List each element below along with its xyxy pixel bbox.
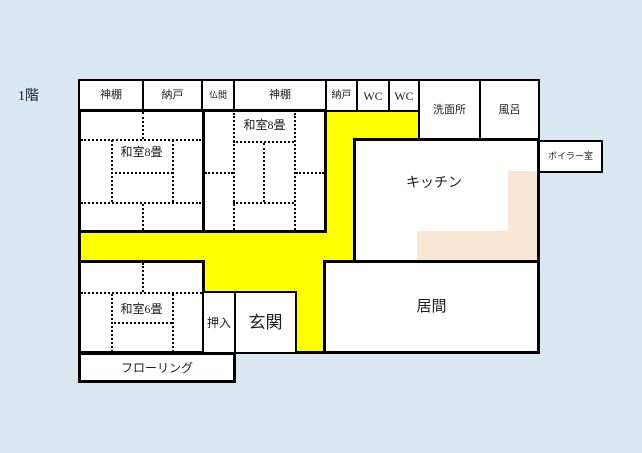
tatami-divider	[111, 140, 113, 202]
room-label-washitsu8-center: 和室8畳	[243, 119, 285, 131]
corridor-segment-main-hall	[80, 233, 356, 262]
room-label-boiler: ボイラー室	[548, 152, 593, 161]
corridor-segment-entry-side	[296, 262, 325, 352]
tatami-divider	[81, 139, 201, 141]
tatami-divider	[205, 172, 233, 174]
room-boiler: ボイラー室	[538, 140, 603, 173]
tatami-divider	[263, 143, 265, 202]
room-label-ima: 居間	[416, 300, 446, 315]
room-nando-1: 納戸	[142, 79, 203, 112]
room-label-kitchen: キッチン	[406, 177, 462, 191]
tatami-divider	[296, 172, 324, 174]
room-flooring: フローリング	[78, 352, 236, 383]
tatami-divider	[111, 322, 172, 324]
room-butsuma: 仏間	[201, 79, 235, 112]
room-label-senmenjo: 洗面所	[433, 105, 466, 116]
room-genkan: 玄関	[234, 291, 297, 354]
room-nando-2: 納戸	[325, 79, 358, 112]
room-label-wc-2: WC	[394, 90, 413, 102]
tatami-divider	[111, 172, 173, 174]
tatami-divider	[81, 292, 202, 294]
room-senmenjo: 洗面所	[418, 79, 481, 142]
room-label-furo: 風呂	[499, 105, 521, 116]
room-wc-2: WC	[388, 79, 420, 112]
tatami-divider	[172, 140, 174, 202]
room-label-flooring: フローリング	[121, 362, 193, 374]
floor-plan-canvas: 1階 神棚 納戸 仏間 神棚 納戸 WC WC 洗面所 風呂 和室8畳 和室8畳	[0, 0, 642, 453]
corridor-segment-top	[327, 111, 418, 140]
room-label-wc-1: WC	[363, 90, 382, 102]
tatami-divider	[233, 202, 294, 204]
tatami-divider	[142, 204, 144, 230]
room-label-nando-1: 納戸	[162, 90, 184, 101]
room-oshiire: 押入	[202, 291, 236, 354]
tatami-divider	[233, 113, 235, 230]
tatami-divider	[142, 263, 144, 292]
room-label-washitsu8-left: 和室8畳	[120, 146, 162, 158]
kitchen-counter-horizontal	[417, 231, 537, 260]
room-label-nando-2: 納戸	[332, 91, 352, 101]
room-label-genkan: 玄関	[249, 314, 283, 331]
room-ima: 居間	[323, 260, 540, 354]
room-kamidana-1: 神棚	[78, 79, 144, 112]
room-label-washitsu6: 和室6畳	[120, 303, 162, 315]
room-furo: 風呂	[479, 79, 540, 142]
room-label-kamidana-2: 神棚	[269, 90, 291, 101]
floor-label: 1階	[18, 85, 39, 105]
room-kamidana-2: 神棚	[233, 79, 327, 112]
room-label-oshiire: 押入	[207, 317, 231, 329]
room-label-kamidana-1: 神棚	[100, 90, 122, 101]
room-wc-1: WC	[356, 79, 390, 112]
tatami-divider	[142, 112, 144, 139]
tatami-divider	[172, 294, 174, 352]
room-label-butsuma: 仏間	[209, 91, 227, 100]
corridor-segment-entry-top	[203, 262, 297, 293]
tatami-divider	[81, 202, 201, 204]
